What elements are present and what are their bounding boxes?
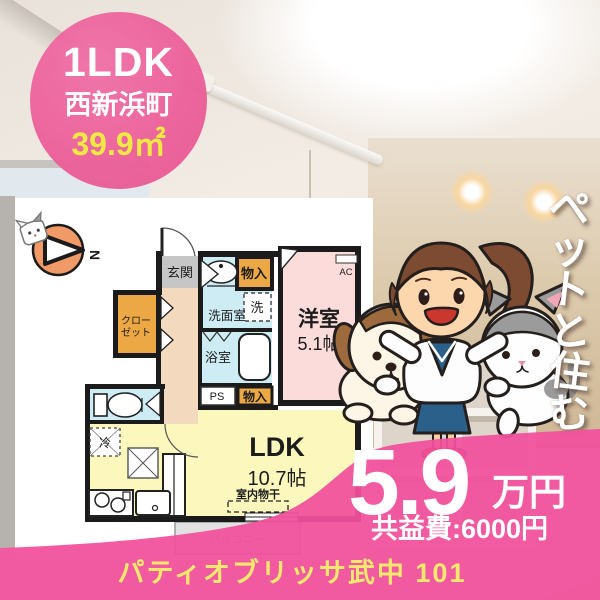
rent-unit: 万円 (492, 474, 566, 511)
maintenance-fee: 共益費:6000円 (371, 515, 548, 545)
building-name: パティオブリッサ武中 101 (0, 551, 592, 590)
listing-image: N 玄関 物入 洗面室 洗 浴室 PS 物入 洋室 5.1帖 AC クロー ゼッ… (0, 0, 600, 600)
